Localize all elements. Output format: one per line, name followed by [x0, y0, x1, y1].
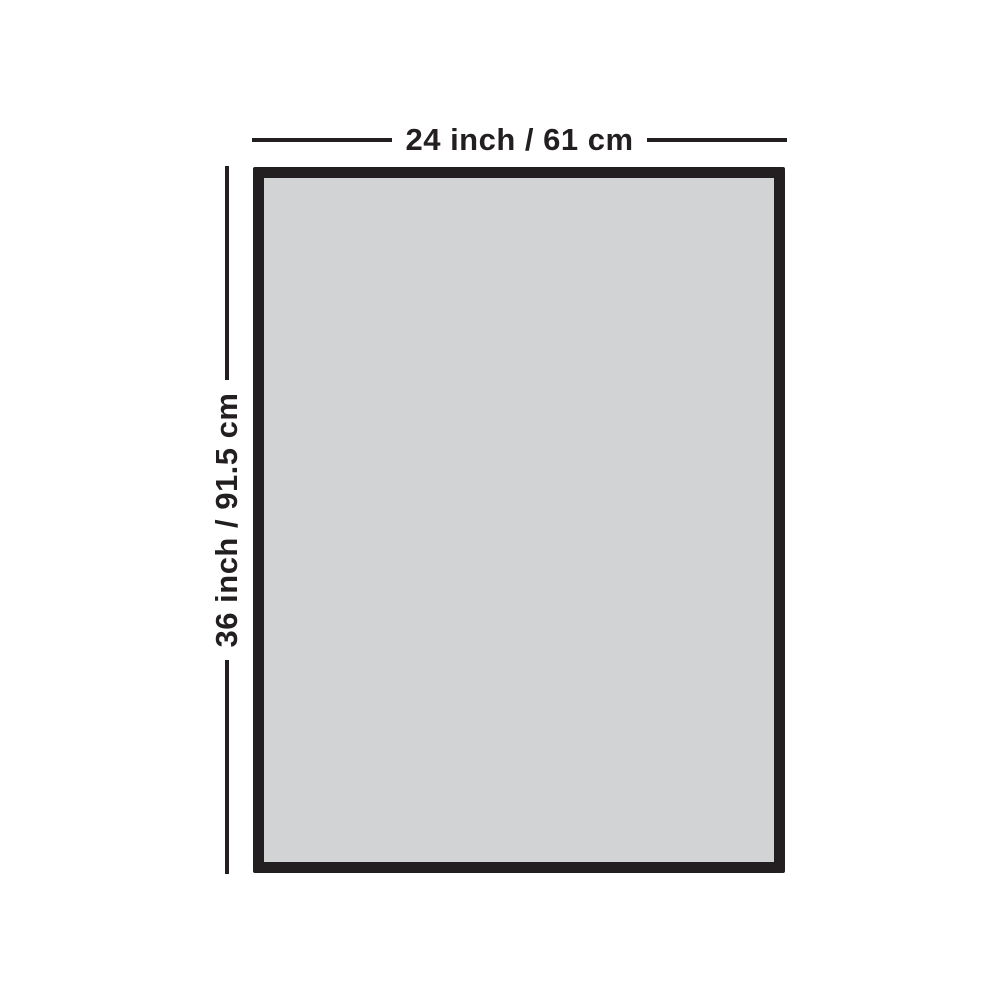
height-dimension: 36 inch / 91.5 cm [211, 166, 243, 874]
width-dimension-label: 24 inch / 61 cm [405, 124, 633, 156]
width-dimension: 24 inch / 61 cm [252, 124, 787, 156]
width-dimension-line-left [252, 138, 392, 142]
product-rectangle [253, 167, 785, 873]
height-dimension-line-bottom [225, 660, 229, 874]
dimension-diagram: 24 inch / 61 cm 36 inch / 91.5 cm [0, 0, 1000, 1000]
height-dimension-line-top [225, 166, 229, 380]
width-dimension-line-right [647, 138, 787, 142]
height-dimension-label: 36 inch / 91.5 cm [211, 393, 243, 648]
